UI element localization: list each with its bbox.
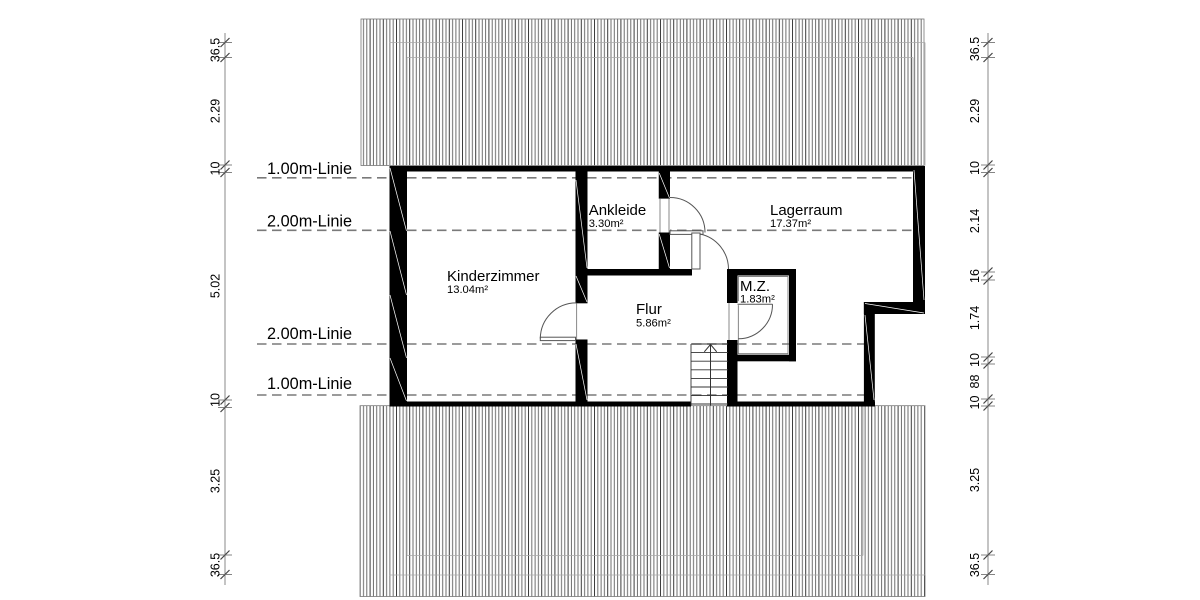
svg-text:Kinderzimmer: Kinderzimmer — [447, 268, 540, 285]
svg-text:36.5: 36.5 — [968, 553, 982, 577]
svg-text:Lagerraum: Lagerraum — [770, 202, 843, 219]
svg-text:3.25: 3.25 — [209, 469, 223, 493]
svg-text:1.74: 1.74 — [968, 306, 982, 330]
svg-text:5.86m²: 5.86m² — [636, 318, 671, 330]
svg-text:16: 16 — [968, 269, 982, 283]
svg-text:2.29: 2.29 — [968, 99, 982, 123]
svg-text:2.29: 2.29 — [209, 99, 223, 123]
svg-text:1.00m-Linie: 1.00m-Linie — [267, 375, 352, 393]
svg-text:36.5: 36.5 — [209, 553, 223, 577]
svg-text:10: 10 — [209, 162, 223, 176]
svg-text:36.5: 36.5 — [209, 38, 223, 62]
svg-text:36.5: 36.5 — [968, 37, 982, 61]
svg-text:1.83m²: 1.83m² — [740, 293, 775, 305]
svg-text:2.00m-Linie: 2.00m-Linie — [267, 325, 352, 343]
svg-text:17.37m²: 17.37m² — [770, 218, 811, 230]
svg-text:5.02: 5.02 — [209, 274, 223, 298]
svg-text:3.30m²: 3.30m² — [589, 218, 624, 230]
svg-text:10: 10 — [968, 396, 982, 410]
svg-text:10: 10 — [968, 353, 982, 367]
svg-text:10: 10 — [209, 393, 223, 407]
svg-text:1.00m-Linie: 1.00m-Linie — [267, 160, 352, 178]
svg-text:Ankleide: Ankleide — [589, 202, 647, 219]
svg-text:13.04m²: 13.04m² — [447, 284, 488, 296]
svg-text:3.25: 3.25 — [968, 468, 982, 492]
svg-text:88: 88 — [968, 375, 982, 389]
svg-text:2.14: 2.14 — [968, 209, 982, 233]
svg-text:2.00m-Linie: 2.00m-Linie — [267, 213, 352, 231]
svg-text:10: 10 — [968, 161, 982, 175]
svg-text:Flur: Flur — [636, 301, 662, 318]
